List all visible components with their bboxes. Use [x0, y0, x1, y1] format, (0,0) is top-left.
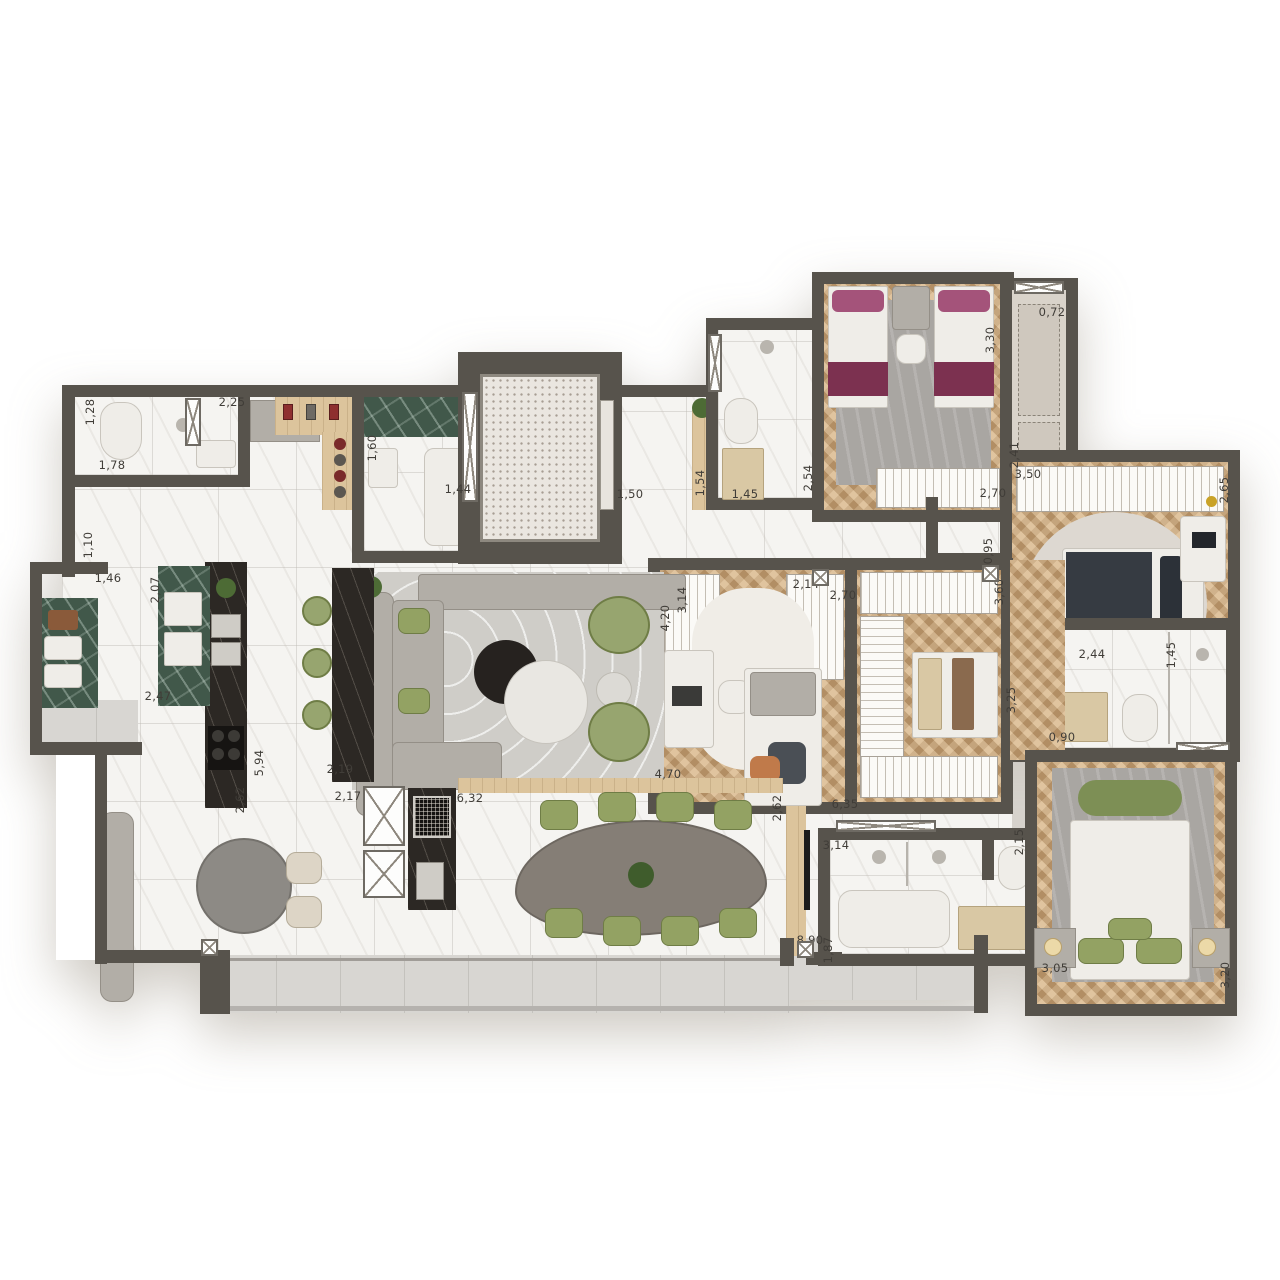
- dimension-label: 2,70: [980, 486, 1007, 500]
- dimension-label: 0,72: [1039, 305, 1066, 319]
- door-marker-icon: [812, 569, 829, 586]
- dimension-label: 2,15: [1012, 829, 1026, 856]
- dimension-label: 3,25: [1004, 687, 1018, 714]
- door-marker-icon: [797, 941, 814, 958]
- dimension-label: 2,54: [801, 465, 815, 492]
- dimension-label: 2,19: [327, 762, 354, 776]
- dimension-label: 1,45: [732, 487, 759, 501]
- dimension-label: 2,41: [1007, 442, 1021, 469]
- dimension-label: 3,50: [1015, 467, 1042, 481]
- dimension-label: 3,20: [1218, 962, 1232, 989]
- dimension-label: 3,60: [992, 579, 1006, 606]
- dimension-label: 5,94: [252, 750, 266, 777]
- dimension-label: 1,54: [693, 470, 707, 497]
- dimension-labels-layer: 1,282,251,781,601,441,501,541,452,541,10…: [0, 0, 1280, 1280]
- dimension-label: 1,45: [1164, 642, 1178, 669]
- dimension-label: 1,50: [617, 487, 644, 501]
- dimension-label: 2,47: [145, 689, 172, 703]
- dimension-label: 2,07: [148, 577, 162, 604]
- floor-plan-canvas: 1,282,251,781,601,441,501,541,452,541,10…: [0, 0, 1280, 1280]
- dimension-label: 2,62: [233, 787, 247, 814]
- dimension-label: 2,44: [1079, 647, 1106, 661]
- dimension-label: 4,70: [655, 767, 682, 781]
- dimension-label: 3,14: [823, 838, 850, 852]
- dimension-label: 6,32: [457, 791, 484, 805]
- door-marker-icon: [201, 939, 218, 956]
- dimension-label: 3,05: [1042, 961, 1069, 975]
- dimension-label: 2,62: [770, 795, 784, 822]
- dimension-label: 1,28: [83, 399, 97, 426]
- dimension-label: 1,60: [365, 435, 379, 462]
- dimension-label: 2,17: [335, 789, 362, 803]
- door-marker-icon: [982, 565, 999, 582]
- dimension-label: 6,35: [832, 797, 859, 811]
- dimension-label: 1,44: [445, 482, 472, 496]
- dimension-label: 1,10: [81, 532, 95, 559]
- dimension-label: 1,78: [99, 458, 126, 472]
- dimension-label: 4,20: [658, 605, 672, 632]
- dimension-label: 0,95: [981, 538, 995, 565]
- dimension-label: 1,46: [95, 571, 122, 585]
- dimension-label: 3,14: [675, 587, 689, 614]
- dimension-label: 2,65: [1217, 477, 1231, 504]
- dimension-label: 0,90: [1049, 730, 1076, 744]
- apartment-floor-plan: 1,282,251,781,601,441,501,541,452,541,10…: [0, 0, 1280, 1280]
- dimension-label: 2,25: [219, 395, 246, 409]
- dimension-label: 3,30: [983, 327, 997, 354]
- dimension-label: 2,70: [830, 588, 857, 602]
